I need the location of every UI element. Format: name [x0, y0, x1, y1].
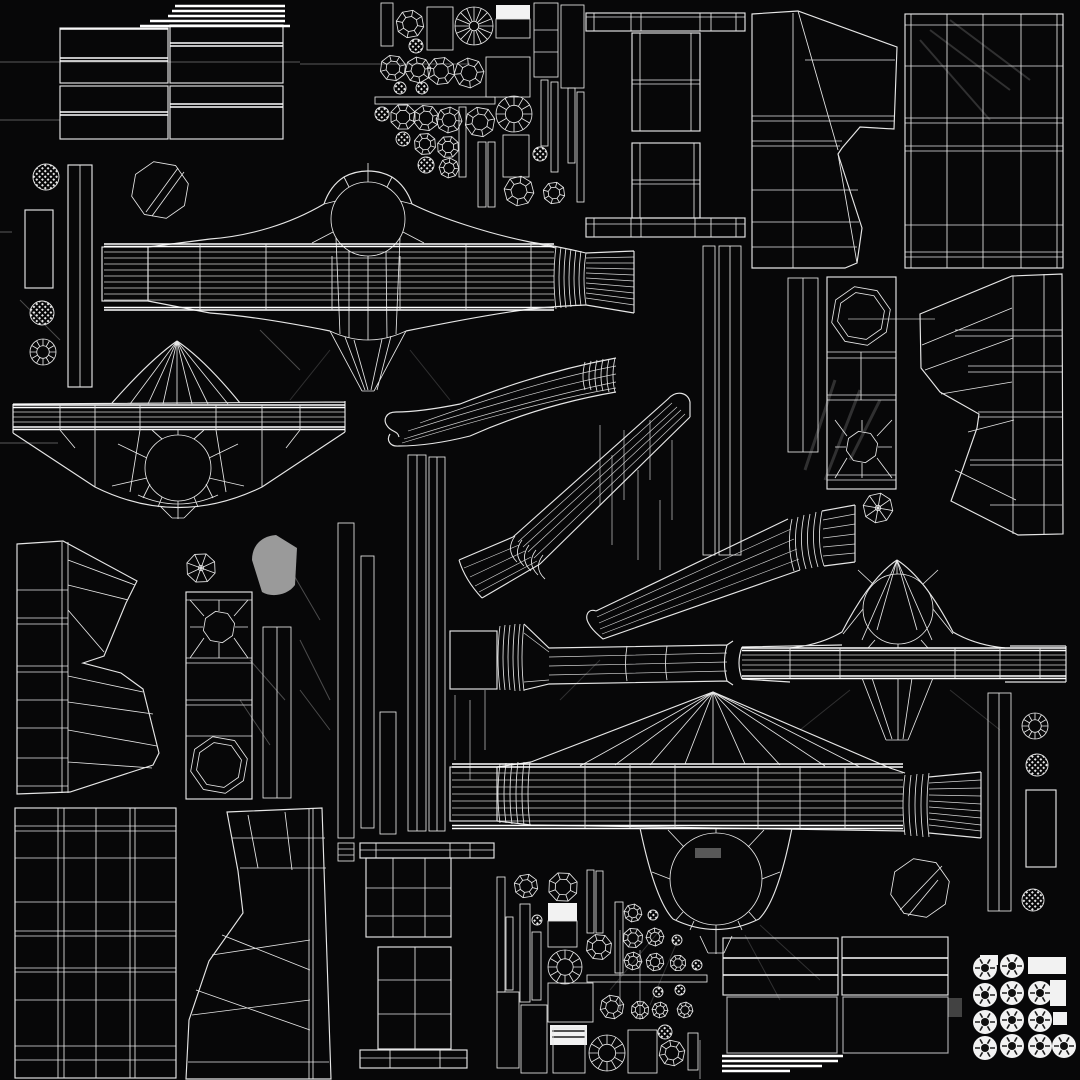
uv-atlas-svg: Wireframe UV texture atlas - mechanical … [0, 0, 1080, 1080]
uv-atlas-canvas: Wireframe UV texture atlas - mechanical … [0, 0, 1080, 1080]
